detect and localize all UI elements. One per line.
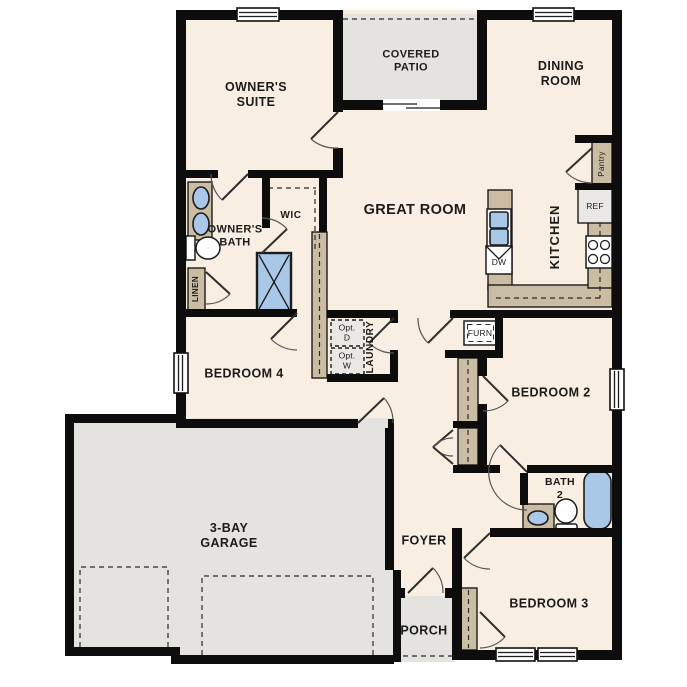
window bbox=[533, 8, 574, 21]
window bbox=[237, 8, 279, 21]
room-label-linen: LINEN bbox=[191, 276, 201, 302]
kitchen-sink-basin bbox=[490, 229, 508, 245]
sliding-patio-door bbox=[383, 99, 440, 111]
floor-plan: OWNER'S SUITE COVERED PATIO DINING ROOM … bbox=[0, 0, 687, 687]
bathtub bbox=[584, 471, 611, 529]
room-label-laundry: LAUNDRY bbox=[365, 321, 377, 374]
room-label-bedroom-3: BEDROOM 3 bbox=[509, 596, 588, 611]
room-label-bedroom-4: BEDROOM 4 bbox=[204, 366, 283, 381]
owners-bath-sink bbox=[193, 187, 209, 209]
room-label-covered-patio: COVERED PATIO bbox=[382, 49, 439, 76]
window bbox=[538, 648, 577, 661]
appliance-label-opt-dryer: Opt. D bbox=[339, 323, 356, 344]
owners-toilet-tank bbox=[186, 236, 195, 260]
appliance-label-furn: FURN bbox=[468, 328, 492, 338]
appliance-label-ref: REF bbox=[586, 201, 604, 211]
room-label-foyer: FOYER bbox=[401, 533, 446, 548]
appliance-label-opt-washer: Opt. W bbox=[339, 351, 356, 372]
room-label-porch: PORCH bbox=[400, 623, 447, 638]
room-label-great-room: GREAT ROOM bbox=[364, 202, 467, 220]
bath2-toilet-bowl bbox=[555, 499, 577, 523]
window bbox=[610, 369, 624, 410]
kitchen-sink-basin bbox=[490, 212, 508, 228]
appliance-label-dw: DW bbox=[492, 257, 507, 267]
stove bbox=[586, 236, 612, 268]
bath2-sink bbox=[528, 511, 548, 525]
room-label-dining-room: DINING ROOM bbox=[538, 59, 584, 90]
room-label-pantry: Pantry bbox=[597, 151, 607, 177]
room-label-garage: 3-BAY GARAGE bbox=[200, 521, 257, 552]
room-label-wic: WIC bbox=[280, 210, 301, 222]
floor-plan-drawing bbox=[0, 0, 687, 687]
room-label-owners-suite: OWNER'S SUITE bbox=[225, 80, 287, 111]
room-label-bath-2: BATH 2 bbox=[545, 476, 575, 502]
room-label-owners-bath: OWNER'S BATH bbox=[208, 224, 263, 251]
window bbox=[496, 648, 535, 661]
room-label-kitchen: KITCHEN bbox=[547, 205, 563, 270]
window bbox=[174, 353, 188, 393]
room-label-bedroom-2: BEDROOM 2 bbox=[511, 385, 590, 400]
